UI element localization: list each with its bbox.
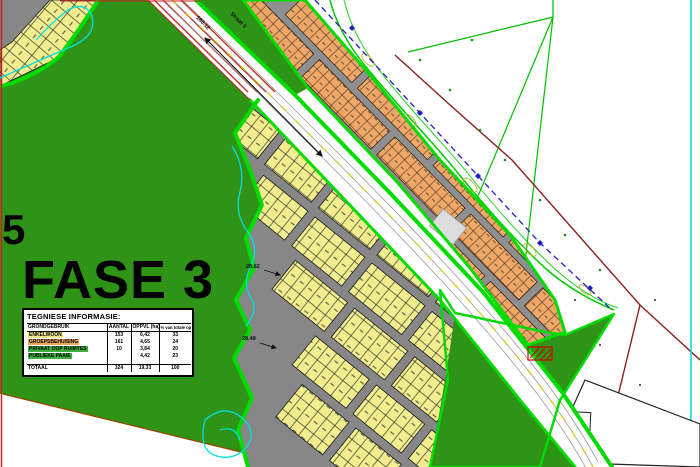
total-percent: 100 xyxy=(159,365,191,373)
area-value: 4,65 xyxy=(131,339,159,346)
total-count: 324 xyxy=(107,365,131,373)
header-count: AANTAL xyxy=(107,324,131,332)
area-value: 6,42 xyxy=(131,332,159,340)
landuse-label: PUBLIEKE PAAIE xyxy=(28,353,72,359)
table-row: GROEPSBEHUISING 161 4,65 24 xyxy=(27,339,191,346)
landuse-label: ENKELWOON xyxy=(28,332,63,338)
landuse-table: GRONDGEBRUIK AANTAL OPPVL (ha) % van tot… xyxy=(27,323,191,372)
percent-value: 33 xyxy=(159,332,191,340)
dimension-label: 28.82 xyxy=(246,264,260,270)
table-header-row: GRONDGEBRUIK AANTAL OPPVL (ha) % van tot… xyxy=(27,324,191,332)
count-value: 10 xyxy=(107,346,131,353)
percent-value: 20 xyxy=(159,346,191,353)
header-area: OPPVL (ha) xyxy=(131,324,159,332)
landuse-label: PRIVAAT OOP RUIMTES xyxy=(28,346,88,352)
landuse-label: GROEPSBEHUISING xyxy=(28,339,79,345)
header-landuse: GRONDGEBRUIK xyxy=(27,324,107,332)
total-area: 19,33 xyxy=(131,365,159,373)
count-value xyxy=(107,353,131,360)
adjacent-phase-label: 5 xyxy=(2,206,25,253)
table-total-row: TOTAAL 324 19,33 100 xyxy=(27,365,191,373)
header-percent: % van totale oppvl. xyxy=(159,324,191,332)
total-label: TOTAAL xyxy=(27,365,107,373)
percent-value: 23 xyxy=(159,353,191,360)
table-row: PRIVAAT OOP RUIMTES 10 3,84 20 xyxy=(27,346,191,353)
table-row: ENKELWOON 153 6,42 33 xyxy=(27,332,191,340)
count-value: 153 xyxy=(107,332,131,340)
table-row: PUBLIEKE PAAIE 4,42 23 xyxy=(27,353,191,360)
percent-value: 24 xyxy=(159,339,191,346)
site-plan-map: 180.12 Straat 3 28.82 28.48 5 FASE 3 xyxy=(0,0,700,467)
phase-title: FASE 3 xyxy=(22,250,214,310)
technical-info-table: TEGNIESE INFORMASIE: GRONDGEBRUIK AANTAL… xyxy=(22,308,194,377)
count-value: 161 xyxy=(107,339,131,346)
site-plan-page: 180.12 Straat 3 28.82 28.48 5 FASE 3 TEG… xyxy=(0,0,700,467)
area-value: 3,84 xyxy=(131,346,159,353)
table-title: TEGNIESE INFORMASIE: xyxy=(27,312,189,321)
area-value: 4,42 xyxy=(131,353,159,360)
dimension-label: 28.48 xyxy=(242,336,256,342)
